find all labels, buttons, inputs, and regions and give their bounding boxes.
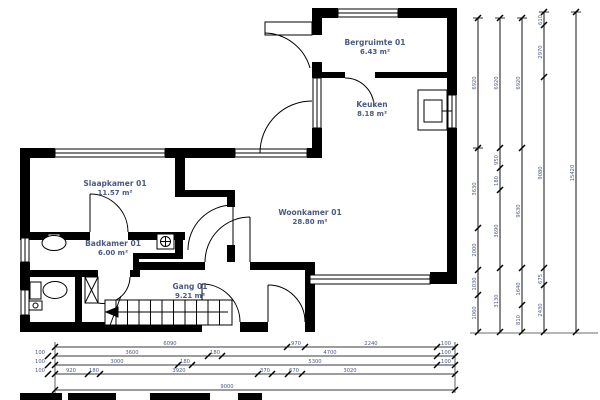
dim-bottom: 970 (291, 341, 301, 347)
dim-right: 950 (494, 155, 500, 165)
room-label-keuken: Keuken (356, 100, 387, 109)
dim-right: 1060 (472, 306, 478, 319)
dim-right: 3130 (494, 294, 500, 307)
dim-right: 1030 (472, 277, 478, 290)
room-label-bergruimte: Bergruimte 01 (344, 38, 405, 47)
dimension-lines-right (470, 12, 598, 333)
dim-right: 675 (538, 274, 544, 284)
room-area-bergruimte: 6.43 m² (360, 48, 390, 56)
dim-bottom: 100 (35, 350, 45, 356)
dimension-lines-bottom (55, 342, 455, 393)
dim-bottom: 2240 (364, 341, 377, 347)
windows (21, 9, 456, 315)
dim-bottom: 3600 (125, 350, 138, 356)
dim-right: 610 (538, 15, 544, 25)
room-labels: Bergruimte 01 6.43 m² Keuken 8.18 m² Sla… (83, 38, 405, 300)
room-area-gang: 9.21 m² (175, 292, 205, 300)
dim-bottom: 3920 (172, 368, 185, 374)
dim-bottom: 100 (441, 341, 451, 347)
dim-bottom: 5300 (308, 359, 321, 365)
dim-bottom: 100 (441, 350, 451, 356)
dim-right: 6920 (494, 76, 500, 89)
dim-bottom: 4700 (323, 350, 336, 356)
dim-bottom: 180 (210, 350, 220, 356)
dimension-labels-right: 6920 3630 2000 1030 1060 6920 950 180 36… (472, 15, 576, 325)
dim-right: 2970 (538, 45, 544, 58)
dim-right: 3690 (494, 224, 500, 237)
dim-right: 810 (516, 315, 522, 325)
floor-plan-svg: Bergruimte 01 6.43 m² Keuken 8.18 m² Sla… (0, 0, 600, 400)
dim-bottom: 3000 (110, 359, 123, 365)
dim-right: 6920 (472, 76, 478, 89)
dim-right: 2000 (472, 243, 478, 256)
dim-right: 6920 (516, 76, 522, 89)
kitchen-sink-icon (418, 90, 452, 130)
dim-bottom: 6090 (163, 341, 176, 347)
dimension-ticks-bottom (45, 344, 458, 393)
dim-right: 9630 (516, 204, 522, 217)
room-area-slaapkamer: 11.57 m² (98, 189, 133, 197)
dim-right: 9080 (538, 166, 544, 179)
dim-bottom: 100 (35, 368, 45, 374)
room-area-badkamer: 6.00 m² (98, 249, 128, 257)
toilet-icon (30, 282, 67, 300)
room-label-badkamer: Badkamer 01 (85, 239, 141, 248)
room-area-woonkamer: 28.80 m² (293, 218, 328, 226)
room-label-slaapkamer: Slaapkamer 01 (83, 179, 146, 188)
dim-right: 3630 (472, 182, 478, 195)
dim-bottom: 370 (260, 368, 270, 374)
dim-bottom: 920 (66, 368, 76, 374)
dim-bottom: 670 (289, 368, 299, 374)
dim-right: 15420 (570, 165, 576, 182)
boiler-icon (157, 234, 174, 249)
dim-bottom: 3020 (343, 368, 356, 374)
dim-right: 2430 (538, 303, 544, 316)
dim-bottom: 180 (89, 368, 99, 374)
dim-right: 1640 (516, 282, 522, 295)
staircase (105, 296, 232, 328)
hand-basin-icon (29, 301, 42, 310)
clipped-title-text (20, 393, 262, 400)
dim-bottom: 9000 (220, 384, 233, 390)
room-area-keuken: 8.18 m² (357, 110, 387, 118)
room-label-gang: Gang 01 (173, 282, 208, 291)
dim-bottom: 180 (180, 359, 190, 365)
floor-plan-canvas: Bergruimte 01 6.43 m² Keuken 8.18 m² Sla… (0, 0, 600, 400)
room-label-woonkamer: Woonkamer 01 (278, 208, 341, 217)
dimension-ticks-right (473, 9, 581, 335)
dim-bottom: 100 (441, 359, 451, 365)
dim-right: 180 (494, 176, 500, 186)
dim-bottom: 100 (35, 359, 45, 365)
